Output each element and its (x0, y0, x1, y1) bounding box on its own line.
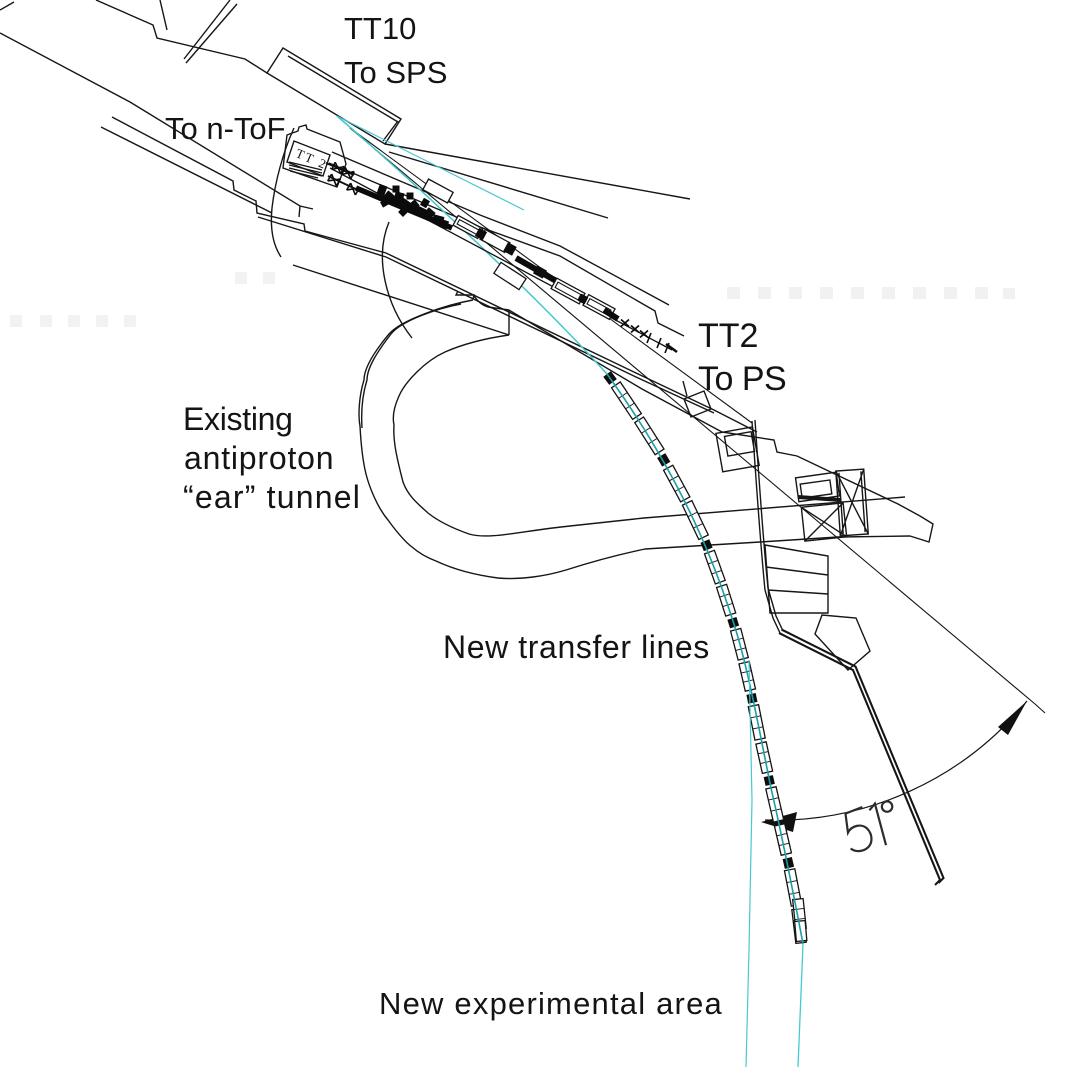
svg-text:To PS: To PS (698, 360, 786, 398)
svg-text:“ear” tunnel: “ear” tunnel (183, 479, 361, 515)
svg-text:Existing: Existing (183, 401, 293, 437)
svg-text:To n-ToF: To n-ToF (165, 111, 286, 146)
svg-text:antiproton: antiproton (184, 440, 334, 476)
svg-text:TT2: TT2 (698, 317, 758, 355)
svg-text:TT10: TT10 (344, 11, 416, 46)
svg-text:New transfer lines: New transfer lines (443, 629, 710, 665)
svg-text:To SPS: To SPS (344, 55, 447, 90)
svg-text:New experimental area: New experimental area (379, 986, 723, 1021)
